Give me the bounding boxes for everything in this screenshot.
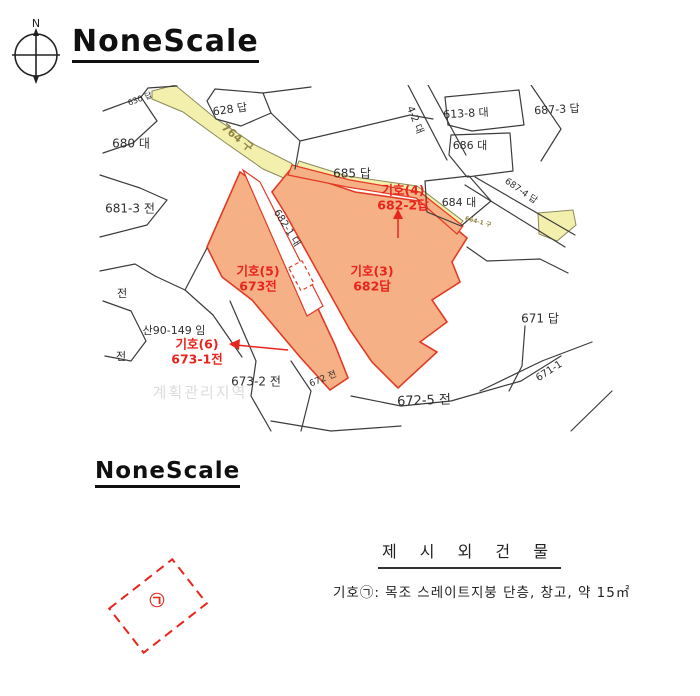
parcel-label: 686 대 bbox=[453, 139, 488, 152]
building-sketch: ㉠ bbox=[95, 548, 225, 668]
parcel-label: 681-3 전 bbox=[105, 202, 155, 216]
subject-parcel-label: 682답 bbox=[353, 279, 391, 294]
subject-parcel-label: 기호(3) bbox=[350, 264, 393, 279]
parcel-label: 전 bbox=[116, 350, 126, 363]
parcel-label: 687-4 답 bbox=[503, 175, 540, 206]
subject-parcel-label: 682-2답 bbox=[377, 198, 429, 213]
parcel-label: 687-3 답 bbox=[534, 102, 580, 117]
legend-title: 제 시 외 건 물 bbox=[378, 538, 561, 569]
parcel-label: 4-2 대 bbox=[404, 104, 426, 135]
section-title: NoneScale bbox=[95, 458, 240, 488]
subject-parcel-label: 기호(4) bbox=[381, 183, 424, 198]
parcel-label: 613-8 대 bbox=[443, 106, 489, 121]
parcel-label: 산90-149 임 bbox=[143, 324, 206, 337]
road-label: 664-1 구 bbox=[464, 215, 492, 229]
parcel-label: 전 bbox=[117, 287, 127, 300]
subject-parcel-label: 기호(6) bbox=[175, 337, 218, 352]
subject-parcel-label: 673전 bbox=[239, 279, 277, 294]
parcel-label: 672-5 전 bbox=[397, 393, 451, 410]
subject-parcel-label: 673-1전 bbox=[171, 352, 222, 367]
parcel-label: 628 답 bbox=[212, 101, 248, 119]
parcel-label: 630 답 bbox=[126, 89, 154, 107]
parcel-label: 680 대 bbox=[112, 137, 150, 151]
page-title: NoneScale bbox=[72, 24, 259, 63]
parcel-label: 671 답 bbox=[521, 312, 559, 326]
document-page: { "colors": { "parcel_fill": "#f6b085", … bbox=[0, 0, 700, 696]
parcel-label: 673-2 전 bbox=[231, 375, 281, 389]
cadastral-map: 계획관리지역 630 답680 대628 답4-2 대613-8 대687-3 … bbox=[95, 85, 625, 447]
legend-item: 기호㉠: 목조 스레이트지붕 단층, 창고, 약 15㎡ bbox=[333, 581, 630, 601]
building-symbol: ㉠ bbox=[149, 592, 164, 610]
compass-icon: N bbox=[8, 10, 70, 90]
subject-parcel-label: 기호(5) bbox=[236, 264, 279, 279]
parcel-label: 685 답 bbox=[333, 167, 371, 181]
parcel-label: 684 대 bbox=[442, 196, 477, 209]
